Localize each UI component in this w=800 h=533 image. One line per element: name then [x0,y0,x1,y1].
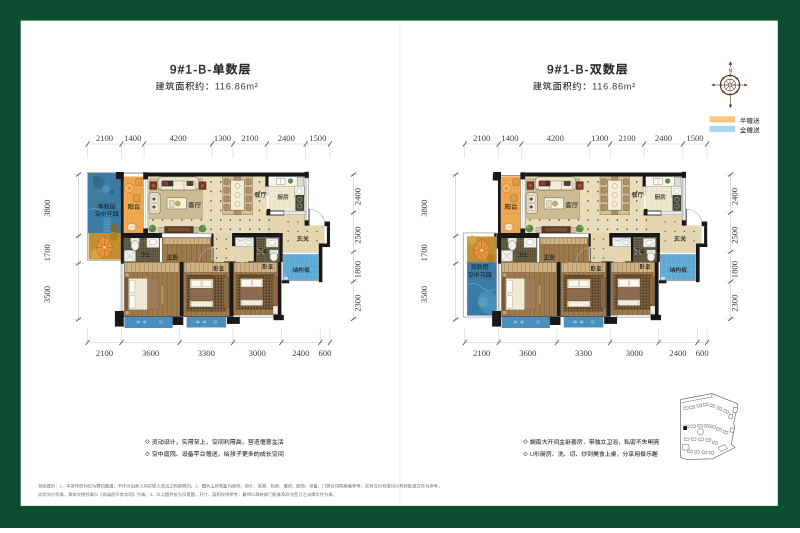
svg-text:玄关: 玄关 [297,234,310,243]
svg-text:特别提示：1、本宣传资料仅为要约邀请，不作为出卖人向买受人发: 特别提示：1、本宣传资料仅为要约邀请，不作为出卖人向买受人发出之购房要约。2、图… [38,483,442,489]
svg-text:2400: 2400 [669,348,686,358]
svg-text:9#1-B-单数层: 9#1-B-单数层 [170,62,252,76]
svg-text:阳台: 阳台 [128,202,140,211]
svg-text:厨房: 厨房 [655,192,667,201]
svg-text:3800: 3800 [419,200,429,217]
svg-text:3600: 3600 [142,348,159,358]
svg-text:1400: 1400 [501,133,518,143]
svg-text:卫生: 卫生 [258,248,268,255]
svg-text:3800: 3800 [42,200,52,217]
svg-text:2500: 2500 [353,227,363,244]
svg-text:全赠送: 全赠送 [740,127,760,135]
svg-text:2400: 2400 [292,348,309,358]
svg-text:2400: 2400 [353,188,363,205]
svg-text:2100: 2100 [241,133,258,143]
svg-text:卧室: 卧室 [591,264,602,272]
svg-text:2100: 2100 [473,348,490,358]
svg-text:3500: 3500 [419,286,429,303]
svg-text:主卧: 主卧 [167,252,179,261]
svg-text:3600: 3600 [519,348,536,358]
svg-text:卫生: 卫生 [141,251,151,258]
svg-text:卫生: 卫生 [518,251,528,258]
svg-text:建筑面积约：116.86m²: 建筑面积约：116.86m² [155,82,258,92]
svg-text:主卧: 主卧 [544,252,556,261]
svg-text:1500: 1500 [686,133,703,143]
svg-text:2400: 2400 [278,133,295,143]
svg-text:空中庭院、设备平台赠送，给孩子更多的成长空间: 空中庭院、设备平台赠送，给孩子更多的成长空间 [152,450,284,458]
svg-text:1400: 1400 [124,133,141,143]
svg-text:4200: 4200 [547,133,564,143]
svg-text:客厅: 客厅 [565,199,579,209]
svg-text:朝南大开间主卧套房，带独立卫浴，私密不失明亮: 朝南大开间主卧套房，带独立卫浴，私密不失明亮 [530,438,660,446]
svg-text:卧室: 卧室 [262,263,273,271]
svg-text:餐厅: 餐厅 [631,190,645,199]
svg-text:1800: 1800 [730,261,740,278]
svg-text:2400: 2400 [655,133,672,143]
svg-text:1300: 1300 [214,133,231,143]
svg-text:N: N [729,69,733,75]
svg-text:600: 600 [696,348,709,358]
svg-text:卫生: 卫生 [635,248,645,255]
svg-text:3000: 3000 [249,348,266,358]
svg-text:600: 600 [319,348,332,358]
svg-text:厨房: 厨房 [277,192,289,201]
svg-text:空中花园: 空中花园 [468,270,492,279]
svg-text:实际交付标准，具体交楼标准以《商品房买卖合同》为准。3、以上: 实际交付标准，具体交楼标准以《商品房买卖合同》为准。3、以上图片仅为示意图，尺寸… [38,491,337,497]
svg-text:餐厅: 餐厅 [253,190,267,199]
svg-text:2100: 2100 [96,348,113,358]
svg-text:半赠送: 半赠送 [740,117,760,125]
svg-text:3300: 3300 [575,348,592,358]
svg-text:2100: 2100 [96,133,113,143]
svg-text:4200: 4200 [170,133,187,143]
svg-text:2100: 2100 [619,133,636,143]
svg-text:9#1-B-双数层: 9#1-B-双数层 [547,62,629,76]
svg-text:灵动设计，实用至上，空间利用高，营造惬意生活: 灵动设计，实用至上，空间利用高，营造惬意生活 [152,438,284,446]
svg-text:卧室: 卧室 [640,263,651,271]
svg-text:1500: 1500 [309,133,326,143]
svg-text:客厅: 客厅 [188,199,202,209]
svg-text:1700: 1700 [42,244,52,261]
svg-text:结构板: 结构板 [670,265,688,274]
svg-text:1300: 1300 [591,133,608,143]
svg-text:建筑面积约：116.86m²: 建筑面积约：116.86m² [533,82,636,92]
svg-text:2100: 2100 [473,133,490,143]
svg-text:2300: 2300 [353,295,363,312]
svg-text:卧室: 卧室 [213,264,224,272]
svg-text:空中花园: 空中花园 [95,209,119,218]
svg-text:2400: 2400 [730,188,740,205]
svg-text:玄关: 玄关 [674,234,687,243]
svg-text:3300: 3300 [198,348,215,358]
svg-text:3500: 3500 [42,286,52,303]
svg-text:阳台: 阳台 [505,202,517,211]
svg-text:2500: 2500 [730,227,740,244]
svg-text:2300: 2300 [730,295,740,312]
svg-text:结构板: 结构板 [292,265,310,274]
svg-text:3000: 3000 [626,348,643,358]
svg-text:1700: 1700 [419,244,429,261]
svg-text:1800: 1800 [353,261,363,278]
svg-text:U形厨房、洗、切、炒到美食上桌，分享用餐乐趣: U形厨房、洗、切、炒到美食上桌，分享用餐乐趣 [530,450,658,458]
